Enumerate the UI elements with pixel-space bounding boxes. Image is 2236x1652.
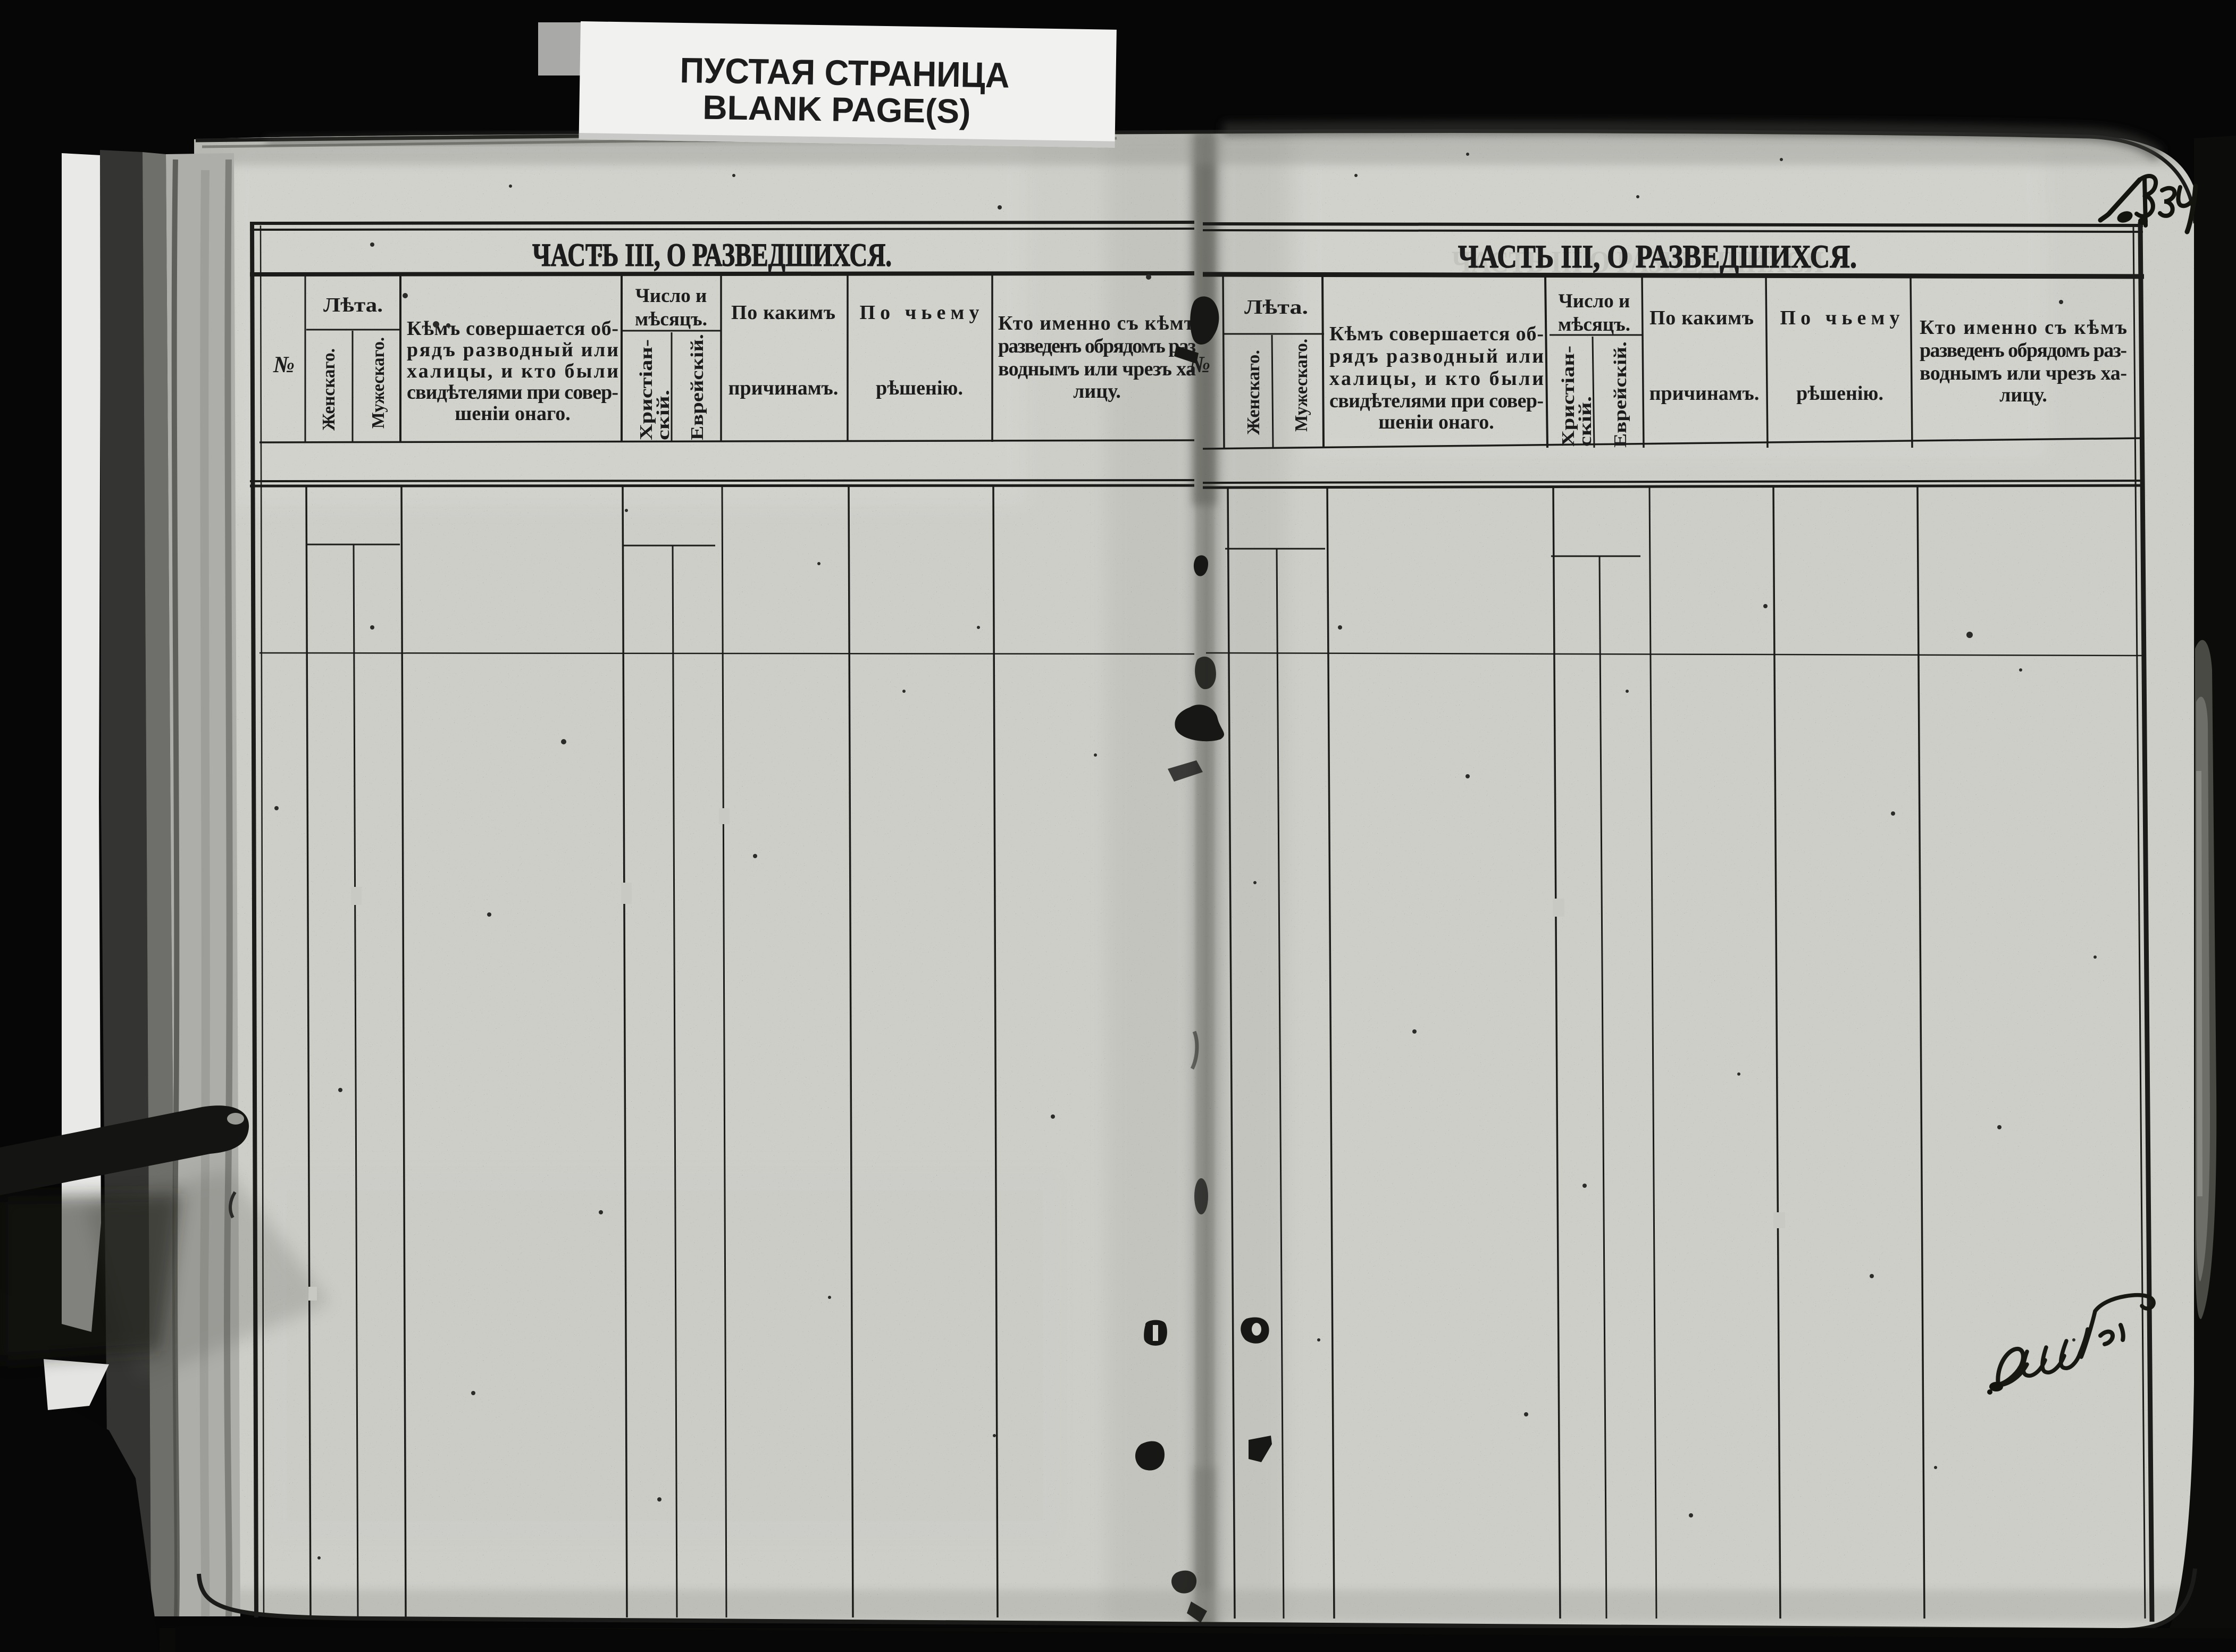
svg-text:Женскаго.: Женскаго. — [319, 348, 339, 431]
svg-text:свидѣтелями при совер-: свидѣтелями при совер- — [1329, 390, 1544, 412]
svg-text:рѣшенію.: рѣшенію. — [1796, 382, 1883, 405]
svg-text:рядъ разводный или: рядъ разводный или — [407, 339, 618, 361]
svg-text:Женскаго.: Женскаго. — [1244, 350, 1263, 435]
svg-text:причинамъ.: причинамъ. — [728, 377, 839, 399]
svg-text:ЧАСТЬ III, О РАЗВЕДШИХСЯ.: ЧАСТЬ III, О РАЗВЕДШИХСЯ. — [532, 238, 892, 273]
svg-text:Еврейскій.: Еврейскій. — [688, 334, 707, 440]
svg-text:Мужескаго.: Мужескаго. — [1292, 339, 1311, 432]
svg-text:Число и: Число и — [635, 285, 707, 307]
svg-text:Лѣта.: Лѣта. — [1244, 296, 1308, 318]
svg-text:воднымъ или чрезъ ха: воднымъ или чрезъ ха — [998, 358, 1196, 380]
svg-text:ЧАСТЬ III О РАЗВЕДШИХСЯ: ЧАСТЬ III О РАЗВЕДШИХСЯ — [1452, 245, 1824, 279]
svg-text:№: № — [273, 351, 295, 378]
svg-text:разведенъ обрядомъ раз-: разведенъ обрядомъ раз- — [1920, 339, 2127, 362]
svg-text:мѣсяцъ.: мѣсяцъ. — [1558, 314, 1630, 336]
svg-text:Мужескаго.: Мужескаго. — [369, 337, 388, 429]
svg-text:свидѣтелями при совер-: свидѣтелями при совер- — [407, 381, 618, 404]
svg-text:По какимъ: По какимъ — [1649, 307, 1754, 329]
svg-text:Число и: Число и — [1559, 290, 1630, 312]
svg-text:лицу.: лицу. — [1999, 384, 2047, 406]
svg-text:Кто именно съ кѣмъ: Кто именно съ кѣмъ — [998, 312, 1196, 334]
svg-text:мѣсяцъ.: мѣсяцъ. — [635, 308, 707, 330]
svg-text:рѣшенію.: рѣшенію. — [876, 377, 963, 399]
svg-text:шеніи онаго.: шеніи онаго. — [1378, 411, 1494, 433]
svg-text:Кто именно съ кѣмъ: Кто именно съ кѣмъ — [1920, 316, 2127, 339]
svg-text:скій.: скій. — [1576, 396, 1595, 447]
svg-text:причинамъ.: причинамъ. — [1649, 382, 1760, 405]
svg-text:Еврейскій.: Еврейскій. — [1611, 341, 1630, 448]
svg-text:воднымъ или чрезъ ха-: воднымъ или чрезъ ха- — [1920, 362, 2127, 384]
svg-text:разведенъ обрядомъ раз: разведенъ обрядомъ раз — [998, 335, 1196, 357]
svg-text:рядъ разводный или: рядъ разводный или — [1329, 345, 1544, 367]
svg-text:скій.: скій. — [654, 390, 673, 440]
svg-text:Кѣмъ совершается об-: Кѣмъ совершается об- — [407, 317, 618, 340]
svg-text:халицы, и кто были: халицы, и кто были — [407, 360, 618, 382]
svg-text:Кѣмъ совершается об-: Кѣмъ совершается об- — [1329, 323, 1544, 345]
svg-text:Лѣта.: Лѣта. — [323, 294, 383, 316]
svg-text:BLANK PAGE(S): BLANK PAGE(S) — [702, 88, 971, 131]
svg-text:шеніи онаго.: шеніи онаго. — [455, 402, 571, 425]
svg-text:лицу.: лицу. — [1073, 380, 1121, 402]
svg-text:халицы, и кто были: халицы, и кто были — [1329, 367, 1544, 390]
svg-text:По какимъ: По какимъ — [731, 301, 835, 324]
